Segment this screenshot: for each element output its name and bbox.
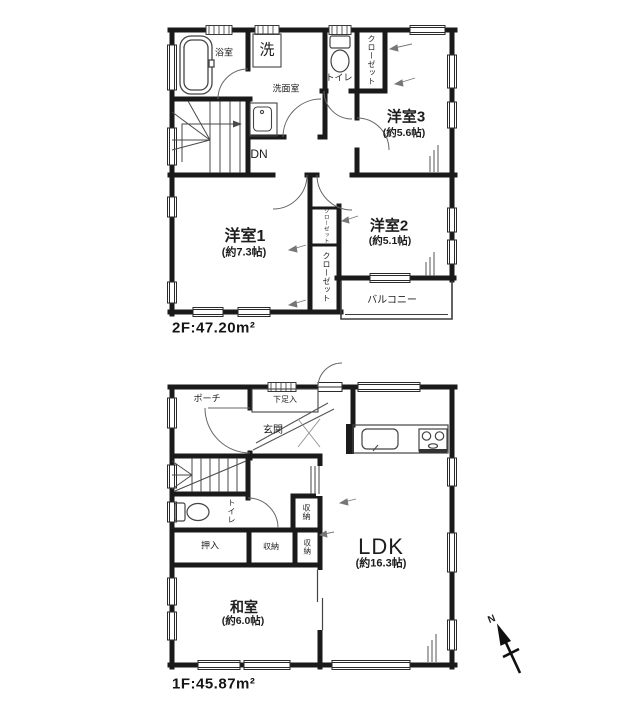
- floor2-vent-ticks: [426, 145, 438, 276]
- room-label-storage-narrow: 収納: [303, 539, 311, 555]
- north-arrow: [499, 628, 520, 673]
- hall-ldk-slider: [311, 466, 324, 496]
- stairs-2f: [172, 101, 240, 173]
- room-label-shoe-cabinet: 下足入: [273, 396, 297, 404]
- room-label-ldk: LDK: [358, 536, 404, 558]
- room-size-ldk: (約16.3帖): [356, 559, 407, 570]
- floorplan-page: 浴室 洗 洗面室 トイレ クローゼット 洋室3 (約5.6帖) DN 洋室1 (…: [0, 0, 627, 715]
- room-label-closet-tall: クローゼット: [322, 252, 330, 303]
- floor1-vent-ticks: [428, 634, 436, 662]
- stairs-2f-arrowhead: [233, 121, 242, 128]
- entrance-cross-hatch: [298, 419, 320, 447]
- room-label-closet-small: クローゼット: [322, 208, 328, 244]
- room-size-room1: (約7.3帖): [222, 248, 267, 259]
- room-label-closet-hall-2f: クローゼット: [367, 35, 375, 86]
- vanity-sink: [250, 103, 277, 136]
- room-label-oshiire: 押入: [201, 542, 219, 551]
- room-label-storage-mid: 収納: [263, 543, 279, 551]
- floor1-closet-arrows: [320, 499, 356, 537]
- room-size-room3: (約5.6帖): [383, 128, 426, 139]
- floor2-vent-windows: [206, 26, 351, 35]
- stairs-dn-label: DN: [250, 148, 267, 160]
- floor2-area-label: 2F:47.20m²: [172, 320, 255, 337]
- room-label-room2: 洋室2: [370, 219, 408, 234]
- stairs-1f: [172, 458, 246, 492]
- room-size-room2: (約5.1帖): [369, 236, 412, 247]
- room-label-toilet-1f: トイレ: [227, 498, 235, 524]
- room-label-room1: 洋室1: [225, 229, 266, 245]
- kitchen-counter: [353, 425, 448, 453]
- room-label-washitsu: 和室: [230, 600, 258, 614]
- room-label-toilet-2f: トイレ: [325, 74, 352, 83]
- room-label-laundry-2f: 洗: [259, 43, 274, 58]
- room-label-porch: ポーチ: [193, 395, 220, 404]
- room-label-storage-hall: 収納: [302, 504, 310, 521]
- room-label-entrance: 玄関: [263, 426, 283, 436]
- room-label-washroom-2f: 洗面室: [272, 85, 299, 94]
- room-size-washitsu: (約6.0帖): [222, 616, 265, 627]
- floorplan-linework: [0, 0, 627, 715]
- room-label-room3: 洋室3: [387, 110, 425, 125]
- room-label-bath-2f: 浴室: [215, 49, 233, 58]
- floor1-area-label: 1F:45.87m²: [172, 676, 255, 693]
- washitsu-ldk-slider: [316, 570, 324, 630]
- toilet-1f: [175, 503, 209, 521]
- kitchen-grill: [419, 449, 447, 453]
- toilet-2f: [330, 36, 350, 72]
- floor2-walls: [170, 30, 455, 314]
- room-label-balcony: バルコニー: [367, 296, 417, 306]
- bathtub: [180, 36, 214, 94]
- floor1-vent-window: [268, 383, 296, 392]
